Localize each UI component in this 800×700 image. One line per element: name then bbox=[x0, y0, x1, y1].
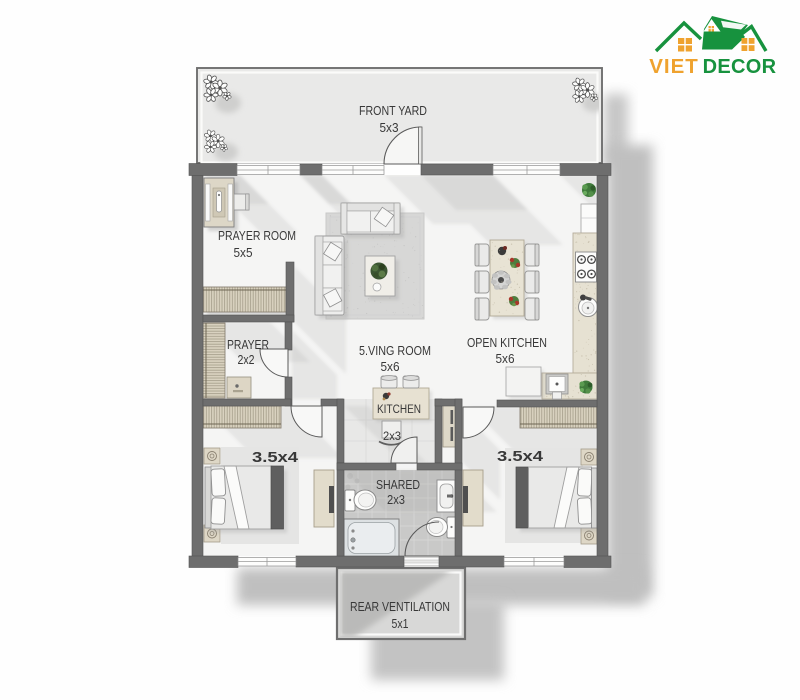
svg-text:REAR VENTILATION: REAR VENTILATION bbox=[350, 599, 450, 614]
svg-text:5x5: 5x5 bbox=[234, 245, 253, 260]
svg-text:2x3: 2x3 bbox=[383, 429, 401, 443]
svg-text:OPEN KITCHEN: OPEN KITCHEN bbox=[467, 335, 547, 350]
svg-text:PRAYER: PRAYER bbox=[227, 337, 269, 352]
svg-text:2x2: 2x2 bbox=[238, 352, 255, 367]
svg-text:VIET: VIET bbox=[649, 55, 699, 78]
svg-text:SHARED: SHARED bbox=[376, 477, 420, 492]
svg-text:5x3: 5x3 bbox=[380, 120, 399, 135]
svg-text:3.5x4: 3.5x4 bbox=[252, 450, 298, 466]
svg-text:FRONT YARD: FRONT YARD bbox=[359, 103, 427, 118]
svg-text:DECOR: DECOR bbox=[703, 56, 777, 78]
svg-text:2x3: 2x3 bbox=[387, 492, 405, 507]
svg-text:KITCHEN: KITCHEN bbox=[377, 404, 421, 416]
svg-text:5.VING ROOM: 5.VING ROOM bbox=[359, 343, 431, 358]
svg-text:PRAYER ROOM: PRAYER ROOM bbox=[218, 228, 296, 243]
svg-text:5x6: 5x6 bbox=[381, 359, 400, 374]
svg-text:5x6: 5x6 bbox=[496, 351, 515, 366]
svg-text:3.5x4: 3.5x4 bbox=[497, 449, 543, 465]
svg-text:5x1: 5x1 bbox=[392, 616, 409, 631]
